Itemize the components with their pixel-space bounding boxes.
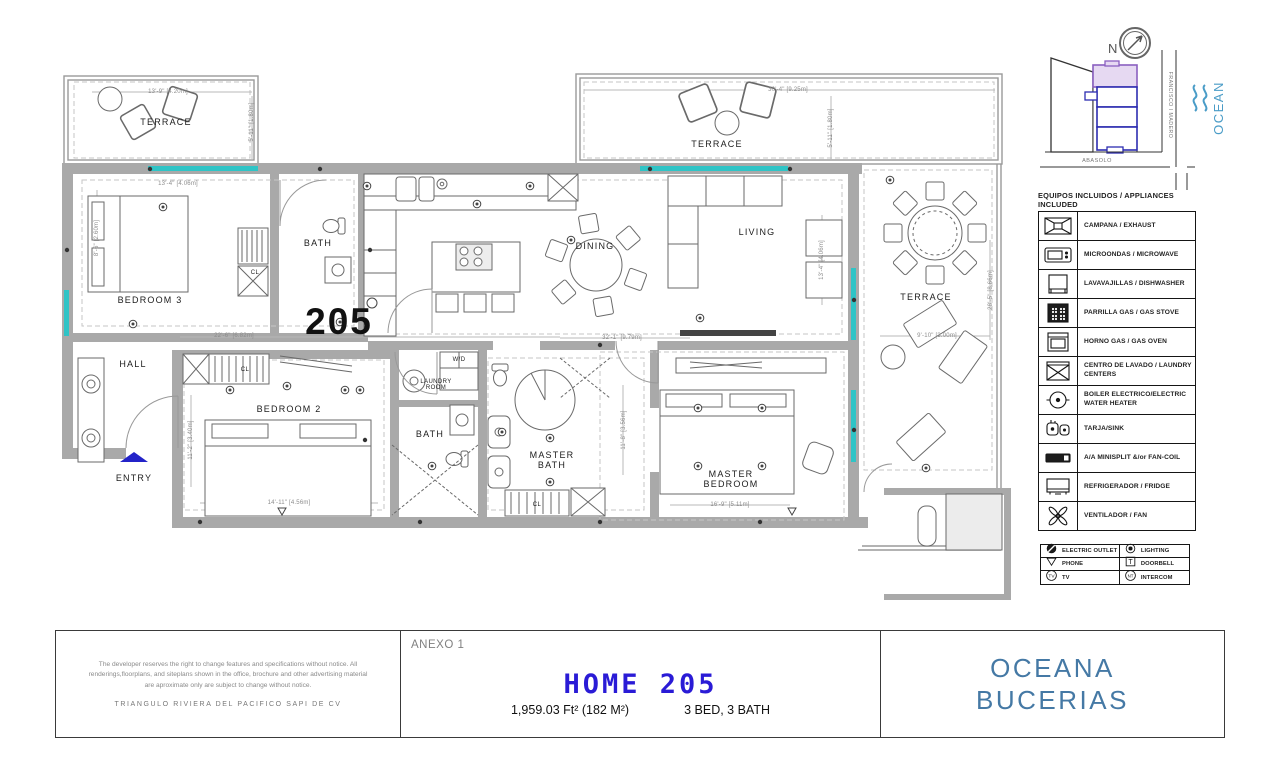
brand-line2: BUCERIAS xyxy=(976,684,1129,717)
symbol-label: TV xyxy=(1062,575,1070,581)
intercom-icon: NT xyxy=(1124,569,1137,587)
microwave-icon xyxy=(1039,241,1078,269)
dishwasher-icon xyxy=(1039,270,1078,298)
home-cell: ANEXO 1 HOME 205 1,959.03 Ft² (182 M²) 3… xyxy=(401,631,881,737)
street-vertical-label: FRANCISCO I MADERO xyxy=(1167,72,1173,139)
disclaimer-cell: The developer reserves the right to chan… xyxy=(56,631,401,737)
beds-baths-label: 3 BED, 3 BATH xyxy=(684,703,770,717)
legend-label: REFRIGERADOR / FRIDGE xyxy=(1078,473,1195,501)
legend-label: A/A MINISPLIT &/or FAN-COIL xyxy=(1078,444,1195,472)
legend-row: PARRILLA GAS / GAS STOVE xyxy=(1038,298,1196,328)
exhaust-hood-icon xyxy=(1039,212,1078,240)
highlighted-unit xyxy=(1093,65,1137,87)
legend-row: A/A MINISPLIT &/or FAN-COIL xyxy=(1038,443,1196,473)
furniture xyxy=(78,81,1002,550)
area-label: 1,959.03 Ft² (182 M²) xyxy=(511,703,629,717)
street-horizontal-label: ABASOLO xyxy=(1082,158,1112,164)
ocean-label: OCEAN xyxy=(1211,81,1226,135)
legend-label: HORNO GAS / GAS OVEN xyxy=(1078,328,1195,356)
legend-label: CAMPANA / EXHAUST xyxy=(1078,212,1195,240)
fan-icon xyxy=(1039,502,1078,530)
gas-stove-icon xyxy=(1039,299,1078,327)
floor-plan: TERRACETERRACETERRACEBEDROOM 3BATHHALLEN… xyxy=(0,0,1020,615)
symbol-label: INTERCOM xyxy=(1141,575,1173,581)
legend-row: REFRIGERADOR / FRIDGE xyxy=(1038,472,1196,502)
symbol-row: TVTVNTINTERCOM xyxy=(1040,570,1190,585)
laundry-center-icon xyxy=(1039,357,1078,385)
disclaimer-text: The developer reserves the right to chan… xyxy=(88,660,368,691)
water-heater-icon xyxy=(1039,386,1078,414)
site-map: N FRANCISCO I MADERO ABASOLO xyxy=(1035,20,1240,195)
title-block: The developer reserves the right to chan… xyxy=(55,630,1225,738)
minisplit-icon xyxy=(1039,444,1078,472)
company-name: TRIANGULO RIVIERA DEL PACIFICO SAPI DE C… xyxy=(114,701,341,708)
tv-icon: TV xyxy=(1045,569,1058,587)
floor-plan-svg xyxy=(0,0,1020,615)
brand-line1: OCEANA xyxy=(990,652,1115,685)
symbols-legend: ELECTRIC OUTLETLIGHTINGPHONETDOORBELLTVT… xyxy=(1040,545,1190,585)
symbol-label: DOORBELL xyxy=(1141,561,1174,567)
legend-label: LAVAVAJILLAS / DISHWASHER xyxy=(1078,270,1195,298)
legend-label: BOILER ELECTRICO/ELECTRIC WATER HEATER xyxy=(1078,386,1195,414)
sink-icon xyxy=(1039,415,1078,443)
north-label: N xyxy=(1108,41,1117,56)
ocean-waves-icon xyxy=(1194,85,1207,111)
symbol-cell: NTINTERCOM xyxy=(1119,570,1190,585)
legend-label: VENTILADOR / FAN xyxy=(1078,502,1195,530)
legend-label: MICROONDAS / MICROWAVE xyxy=(1078,241,1195,269)
symbol-label: ELECTRIC OUTLET xyxy=(1062,548,1117,554)
home-title: HOME 205 xyxy=(401,669,880,700)
gas-oven-icon xyxy=(1039,328,1078,356)
legend-label: CENTRO DE LAVADO / LAUNDRY CENTERS xyxy=(1078,357,1195,385)
floorplan-sheet: TERRACETERRACETERRACEBEDROOM 3BATHHALLEN… xyxy=(0,0,1280,766)
legend-row: TARJA/SINK xyxy=(1038,414,1196,444)
symbol-row: ELECTRIC OUTLETLIGHTING xyxy=(1040,544,1190,559)
legend-label: PARRILLA GAS / GAS STOVE xyxy=(1078,299,1195,327)
compass-icon: N xyxy=(1108,28,1150,58)
legend-row: VENTILADOR / FAN xyxy=(1038,501,1196,531)
anexo-label: ANEXO 1 xyxy=(411,639,464,651)
legend-row: CAMPANA / EXHAUST xyxy=(1038,211,1196,241)
svg-text:T: T xyxy=(1128,560,1133,567)
brand-cell: OCEANA BUCERIAS xyxy=(881,631,1224,737)
legend-row: HORNO GAS / GAS OVEN xyxy=(1038,327,1196,357)
site-map-svg: N FRANCISCO I MADERO ABASOLO xyxy=(1035,20,1240,195)
legend-row: BOILER ELECTRICO/ELECTRIC WATER HEATER xyxy=(1038,385,1196,415)
symbol-cell: TVTV xyxy=(1040,570,1120,585)
svg-text:NT: NT xyxy=(1127,573,1133,578)
legend-row: MICROONDAS / MICROWAVE xyxy=(1038,240,1196,270)
symbol-row: PHONETDOORBELL xyxy=(1040,557,1190,572)
symbol-label: PHONE xyxy=(1062,561,1083,567)
site-lot xyxy=(1051,58,1137,153)
symbol-label: LIGHTING xyxy=(1141,548,1170,554)
svg-text:TV: TV xyxy=(1048,573,1055,579)
appliance-legend: EQUIPOS INCLUIDOS / APPLIANCES INCLUDED … xyxy=(1038,191,1196,531)
legend-row: LAVAVAJILLAS / DISHWASHER xyxy=(1038,269,1196,299)
legend-title: EQUIPOS INCLUIDOS / APPLIANCES INCLUDED xyxy=(1038,191,1196,209)
legend-label: TARJA/SINK xyxy=(1078,415,1195,443)
legend-row: CENTRO DE LAVADO / LAUNDRY CENTERS xyxy=(1038,356,1196,386)
fridge-icon xyxy=(1039,473,1078,501)
